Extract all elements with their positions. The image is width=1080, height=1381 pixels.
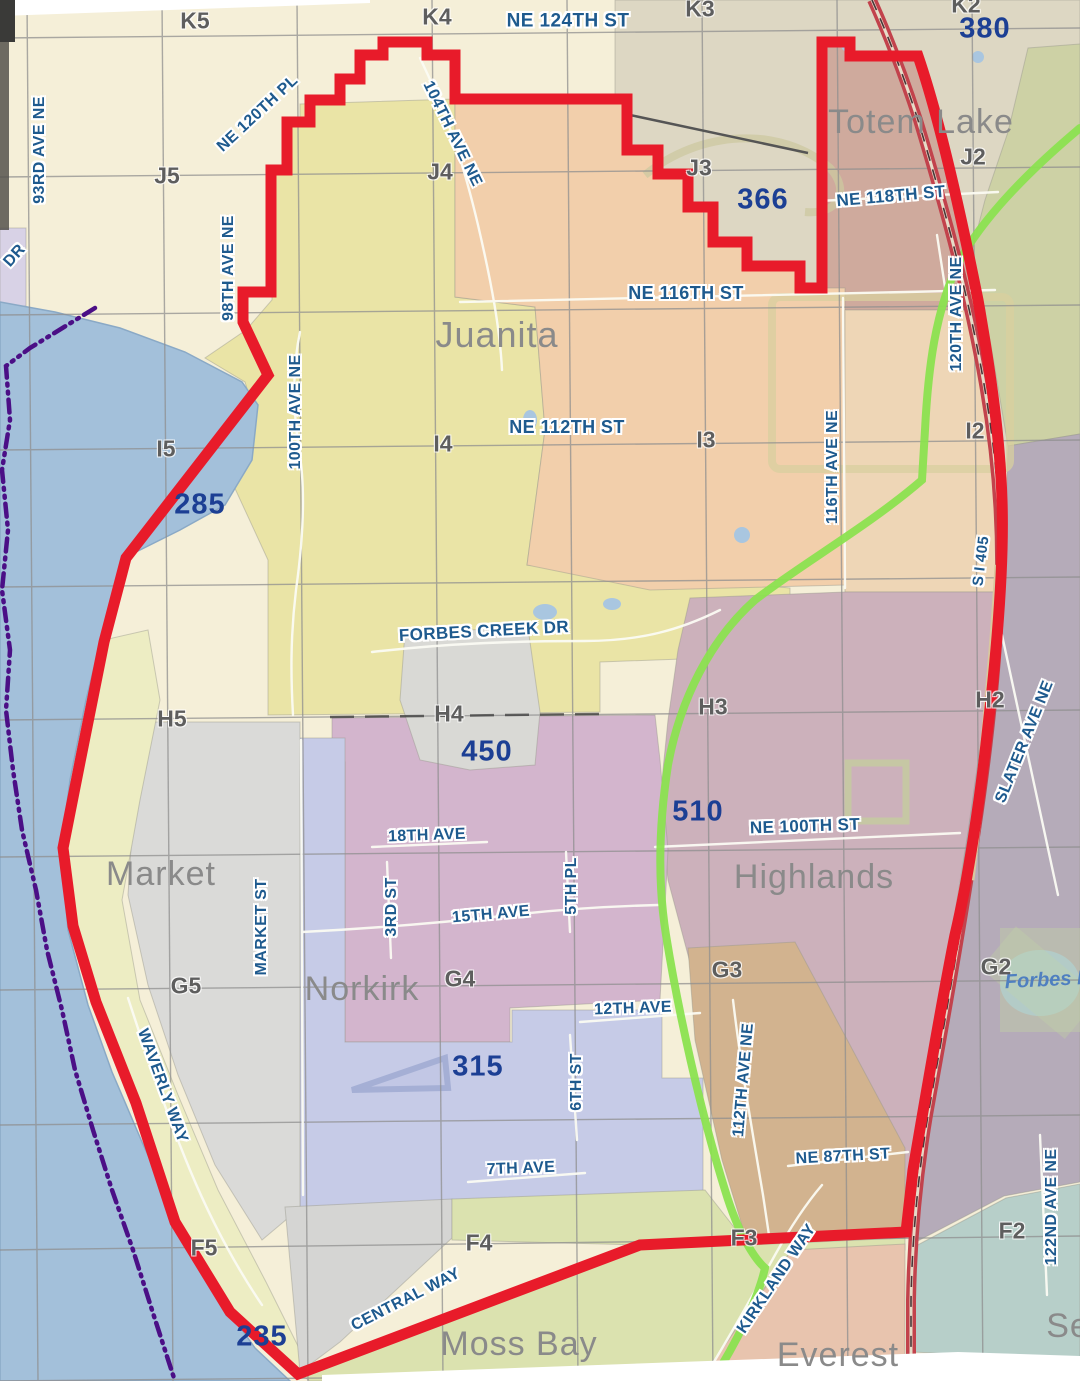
pond-5 [603, 598, 621, 610]
pond-4 [533, 604, 557, 620]
pond-2 [972, 51, 984, 63]
map-screenshot: { "map": { "description": "City neighbor… [0, 0, 1080, 1381]
left-dark-edge-top [0, 0, 15, 42]
zone-gray-pocket [400, 628, 540, 770]
left-dark-edge [0, 42, 9, 230]
map-canvas[interactable]: NE 124TH STNE 120TH PL93RD AVE NEDR98TH … [0, 0, 1080, 1381]
pond-6 [523, 410, 537, 430]
map-graphics [0, 0, 1080, 1381]
zone-lavender-sliver [0, 228, 26, 306]
pond-3 [734, 527, 750, 543]
